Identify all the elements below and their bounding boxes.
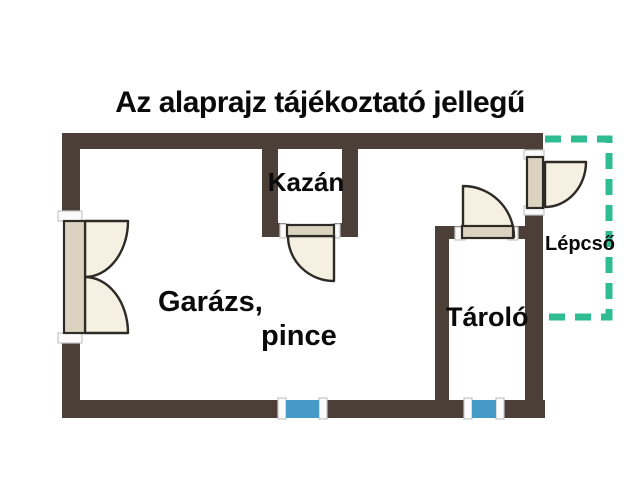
floorplan-drawing: Kazán Garázs, pince Tároló Lépcső <box>0 0 640 480</box>
jamb-garage-bottom <box>58 333 82 343</box>
jamb-window1-left <box>278 398 286 419</box>
floorplan-page: Az alaprajz tájékoztató jellegű <box>0 0 640 480</box>
room-label-tarolo: Tároló <box>446 302 529 332</box>
jamb-window1-right <box>319 398 327 419</box>
room-label-garazs-line2: pince <box>261 320 337 352</box>
window-tarolo <box>472 400 496 418</box>
lepcso-door-swing <box>545 162 586 207</box>
tarolo-door-leaf <box>462 226 513 238</box>
lepcso-door-leaf <box>527 157 543 208</box>
kazan-door-swing <box>288 236 334 281</box>
garage-door-leaf <box>64 221 85 333</box>
kazan-door-leaf <box>287 225 334 236</box>
jamb-garage-top <box>58 211 82 221</box>
room-label-kazan: Kazán <box>268 167 345 197</box>
jamb-window2-left <box>464 398 472 419</box>
window-garage <box>286 400 319 418</box>
wall-left-upper <box>62 133 80 215</box>
garage-door-swing-top <box>85 221 128 277</box>
room-label-lepcso: Lépcső <box>545 233 615 255</box>
wall-top <box>62 133 543 149</box>
garage-door-swing-bottom <box>85 277 128 333</box>
jamb-window2-right <box>496 398 504 419</box>
room-label-garazs-line1: Garázs, <box>158 286 263 318</box>
